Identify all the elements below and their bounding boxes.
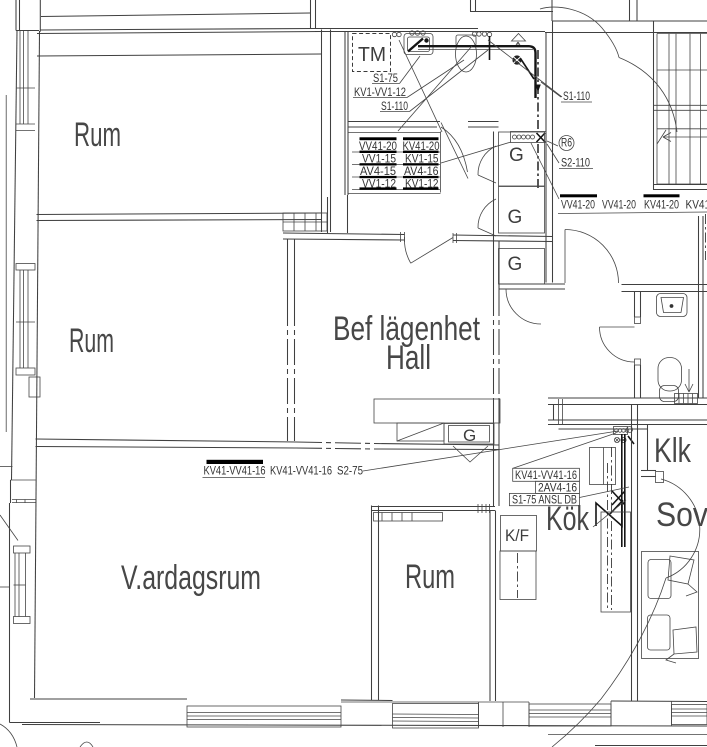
svg-text:G: G — [508, 207, 523, 228]
svg-text:VV1-12: VV1-12 — [362, 178, 396, 190]
svg-text:KV41-VV41-16: KV41-VV41-16 — [270, 466, 332, 478]
svg-text:V.ardagsrum: V.ardagsrum — [121, 559, 261, 597]
svg-text:2AV4-16: 2AV4-16 — [538, 483, 577, 495]
svg-text:G: G — [508, 254, 523, 275]
svg-text:S2-75: S2-75 — [337, 466, 363, 478]
svg-text:VV41-20: VV41-20 — [561, 200, 595, 212]
svg-text:AV4-15: AV4-15 — [360, 166, 396, 178]
svg-text:S2-110: S2-110 — [561, 158, 590, 170]
svg-text:VV1-15: VV1-15 — [362, 154, 396, 166]
svg-text:VV41-20: VV41-20 — [359, 141, 397, 153]
svg-text:G: G — [509, 145, 524, 166]
svg-text:K/F: K/F — [505, 526, 529, 545]
svg-text:Rum: Rum — [69, 322, 114, 360]
svg-text:S1-110: S1-110 — [563, 91, 590, 103]
svg-text:KV41-VV41-16: KV41-VV41-16 — [515, 470, 577, 482]
svg-text:Rum: Rum — [405, 558, 455, 596]
svg-text:KV41-VV41-16: KV41-VV41-16 — [204, 466, 266, 478]
svg-text:KV41-: KV41- — [686, 200, 707, 212]
svg-text:G: G — [463, 426, 476, 445]
svg-text:KV41-20: KV41-20 — [644, 200, 679, 212]
svg-text:R6: R6 — [561, 138, 572, 150]
svg-text:AV4-16: AV4-16 — [404, 166, 439, 178]
svg-text:KV1-12: KV1-12 — [405, 178, 439, 190]
svg-text:KV1-15: KV1-15 — [405, 154, 439, 166]
svg-text:VV41-20: VV41-20 — [602, 200, 636, 212]
svg-text:KV41-20: KV41-20 — [403, 141, 440, 153]
svg-text:Rum: Rum — [74, 116, 121, 154]
svg-text:Klk: Klk — [654, 432, 692, 470]
svg-text:Kök: Kök — [546, 500, 590, 538]
svg-text:TM: TM — [358, 44, 386, 66]
svg-text:Sovr: Sovr — [656, 496, 707, 534]
svg-text:Hall: Hall — [386, 339, 431, 377]
